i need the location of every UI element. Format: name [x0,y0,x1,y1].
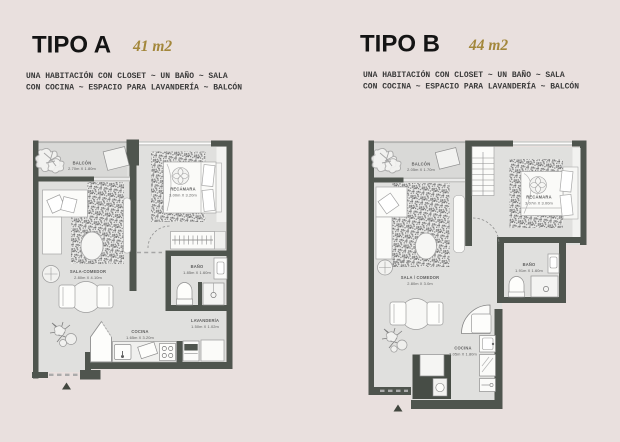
svg-text:UNA HABITACIÓN CON CLOSET ~ UN: UNA HABITACIÓN CON CLOSET ~ UN BAÑO ~ SA… [363,70,565,80]
svg-text:BALCÓN: BALCÓN [73,160,92,165]
svg-text:1.85m X 1.60m: 1.85m X 1.60m [183,270,211,275]
svg-text:TIPO A: TIPO A [32,32,111,59]
svg-text:CON COCINA ~ ESPACIO PARA LAVA: CON COCINA ~ ESPACIO PARA LAVANDERÍA ~ B… [363,82,579,92]
svg-text:RECÁMARA: RECÁMARA [170,187,195,192]
svg-text:BALCÓN: BALCÓN [412,162,431,167]
svg-text:SALA-COMEDOR: SALA-COMEDOR [70,269,106,274]
svg-text:2.05m X 1.70m: 2.05m X 1.70m [407,167,435,172]
svg-text:COCINA: COCINA [131,329,148,334]
svg-text:2.05m X 1.80m: 2.05m X 1.80m [449,351,477,356]
svg-text:3.00m X 3.20m: 3.00m X 3.20m [169,193,197,198]
svg-text:41 m2: 41 m2 [132,38,172,55]
svg-text:BAÑO: BAÑO [523,262,536,267]
svg-text:LAVANDERÍA: LAVANDERÍA [191,318,219,323]
svg-text:44 m2: 44 m2 [468,37,508,54]
svg-text:1.50m X 1.02m: 1.50m X 1.02m [191,324,219,329]
svg-text:2.80m X 3.0m: 2.80m X 3.0m [407,281,432,286]
svg-text:SALA / COMEDOR: SALA / COMEDOR [401,275,440,280]
svg-text:UNA HABITACIÓN CON CLOSET ~ UN: UNA HABITACIÓN CON CLOSET ~ UN BAÑO ~ SA… [26,71,228,81]
svg-text:3.07m X 3.00m: 3.07m X 3.00m [525,201,553,206]
svg-text:COCINA: COCINA [454,346,471,351]
svg-text:2.70m X 1.80m: 2.70m X 1.80m [68,166,96,171]
svg-text:BAÑO: BAÑO [191,264,204,269]
svg-text:1.91m X 1.60m: 1.91m X 1.60m [515,268,543,273]
svg-text:TIPO B: TIPO B [360,31,440,58]
svg-text:CON COCINA ~ ESPACIO PARA LAVA: CON COCINA ~ ESPACIO PARA LAVANDERÍA ~ B… [26,83,242,93]
svg-text:RECÁMARA: RECÁMARA [526,195,551,200]
svg-text:2.80m X 4.10m: 2.80m X 4.10m [74,275,102,280]
svg-text:1.65m X 3.20m: 1.65m X 3.20m [126,335,154,340]
